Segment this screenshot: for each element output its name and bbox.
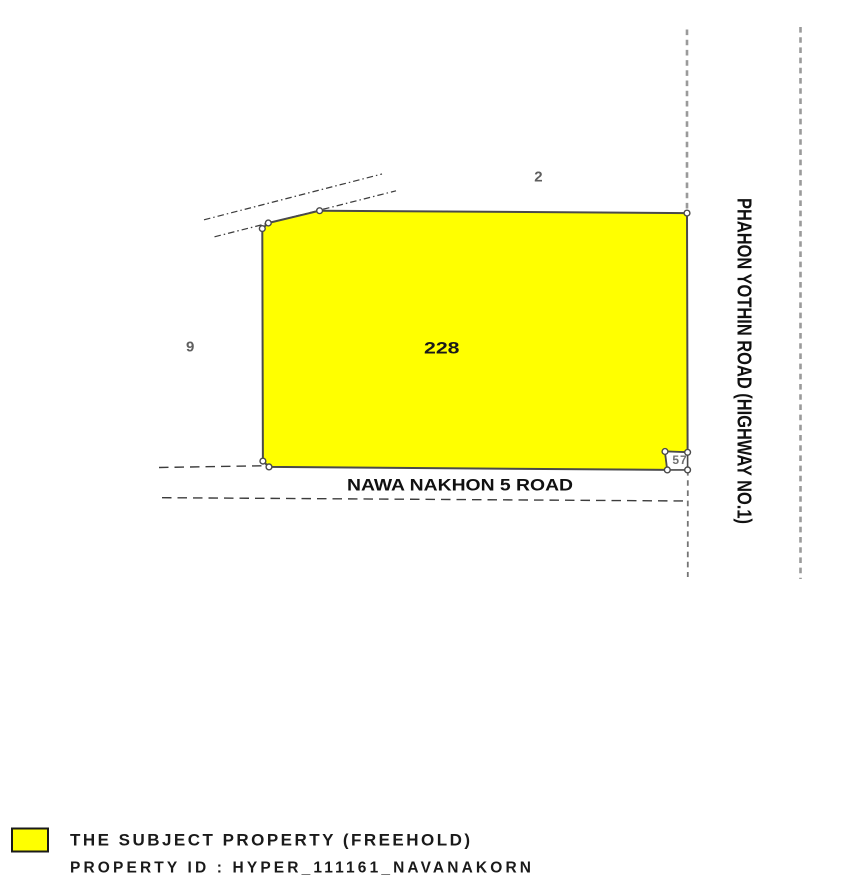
svg-text:2: 2 (534, 168, 542, 185)
svg-text:228: 228 (424, 339, 460, 358)
svg-text:9: 9 (186, 338, 194, 355)
svg-text:PHAHON YOTHIN ROAD (HIGHWAY NO: PHAHON YOTHIN ROAD (HIGHWAY NO.1) (733, 198, 755, 524)
svg-text:NAWA NAKHON 5 ROAD: NAWA NAKHON 5 ROAD (347, 475, 573, 494)
